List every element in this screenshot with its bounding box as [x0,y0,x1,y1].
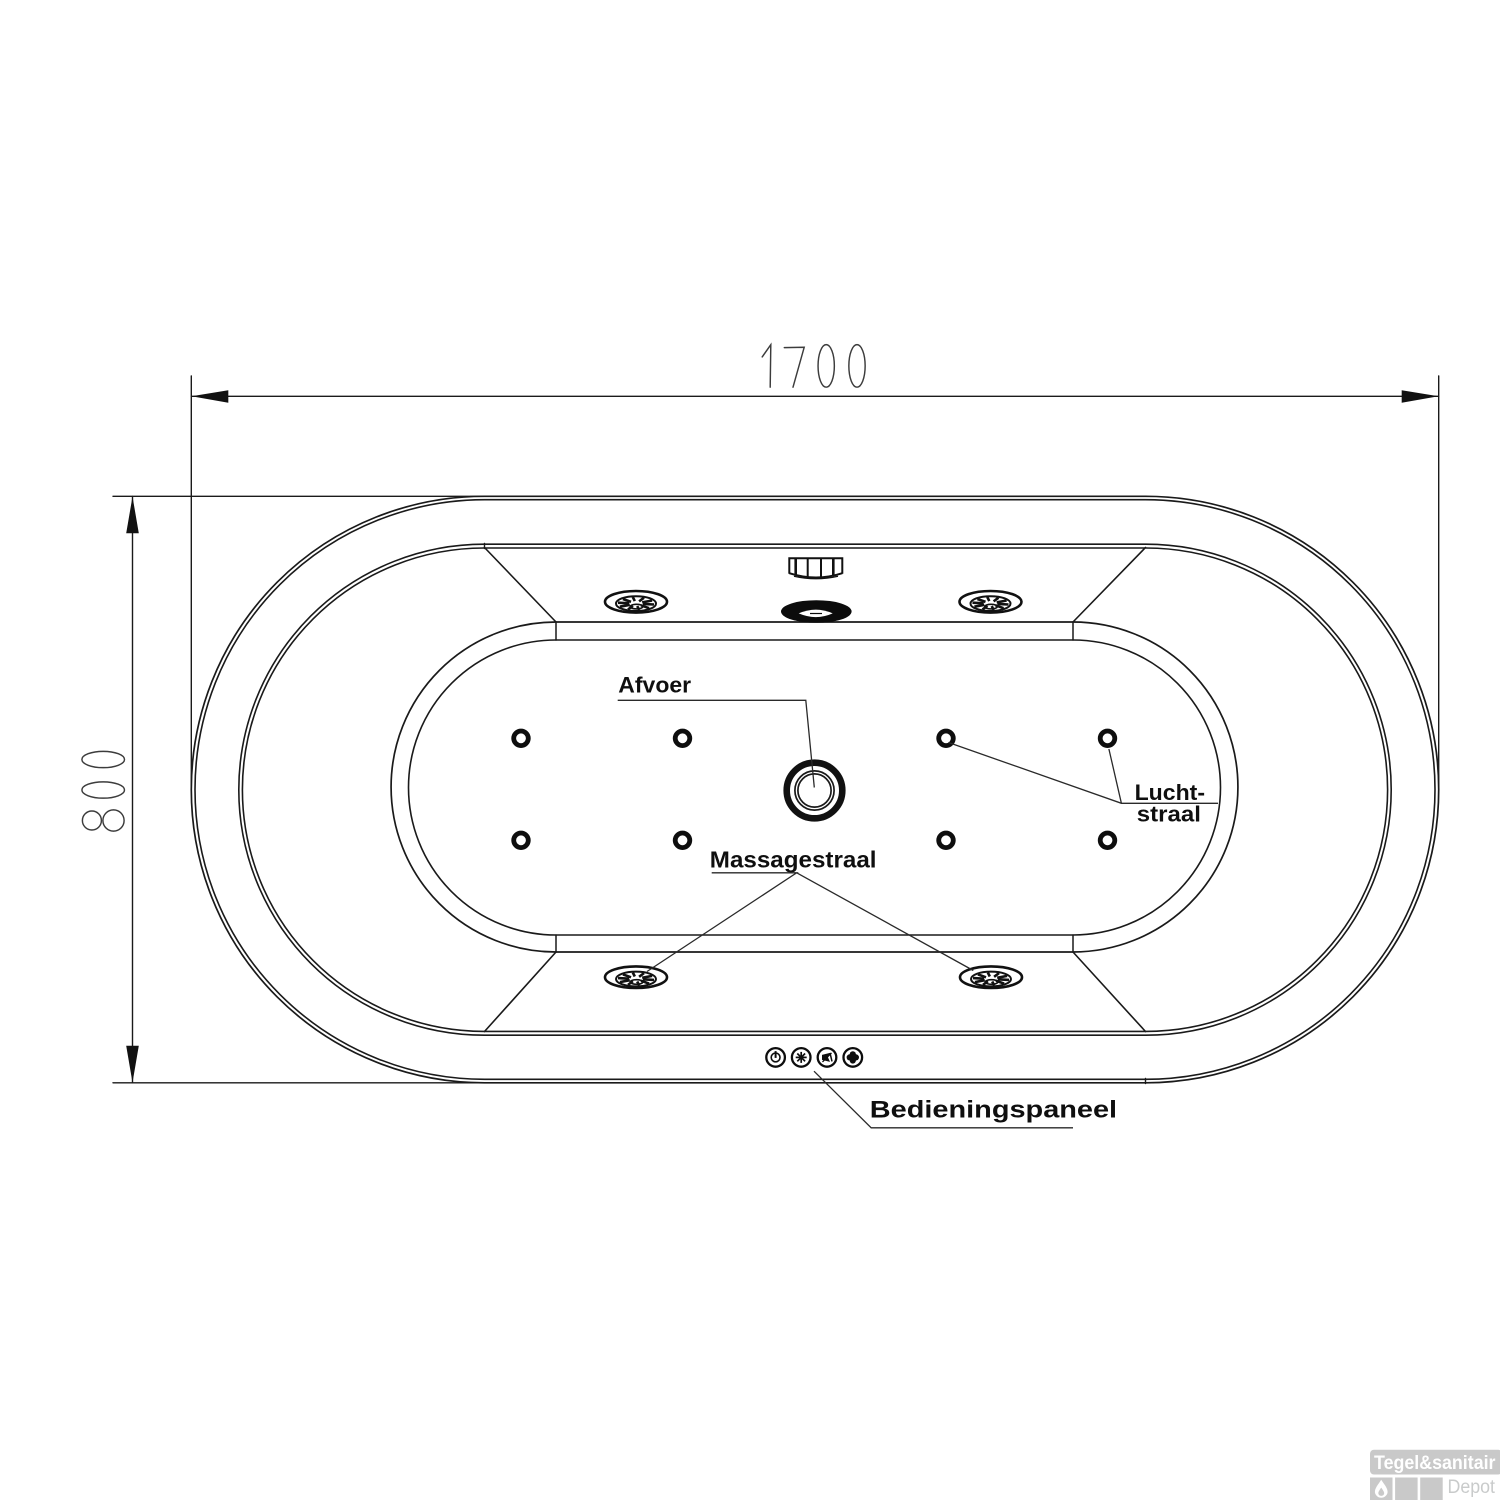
svg-text:straal: straal [1137,801,1201,826]
svg-text:Afvoer: Afvoer [618,673,691,698]
svg-text:Massagestraal: Massagestraal [710,847,877,873]
svg-text:Bedieningspaneel: Bedieningspaneel [870,1096,1117,1123]
svg-text:Tegel&sanitair: Tegel&sanitair [1374,1452,1496,1474]
svg-text:Depot: Depot [1448,1477,1496,1498]
